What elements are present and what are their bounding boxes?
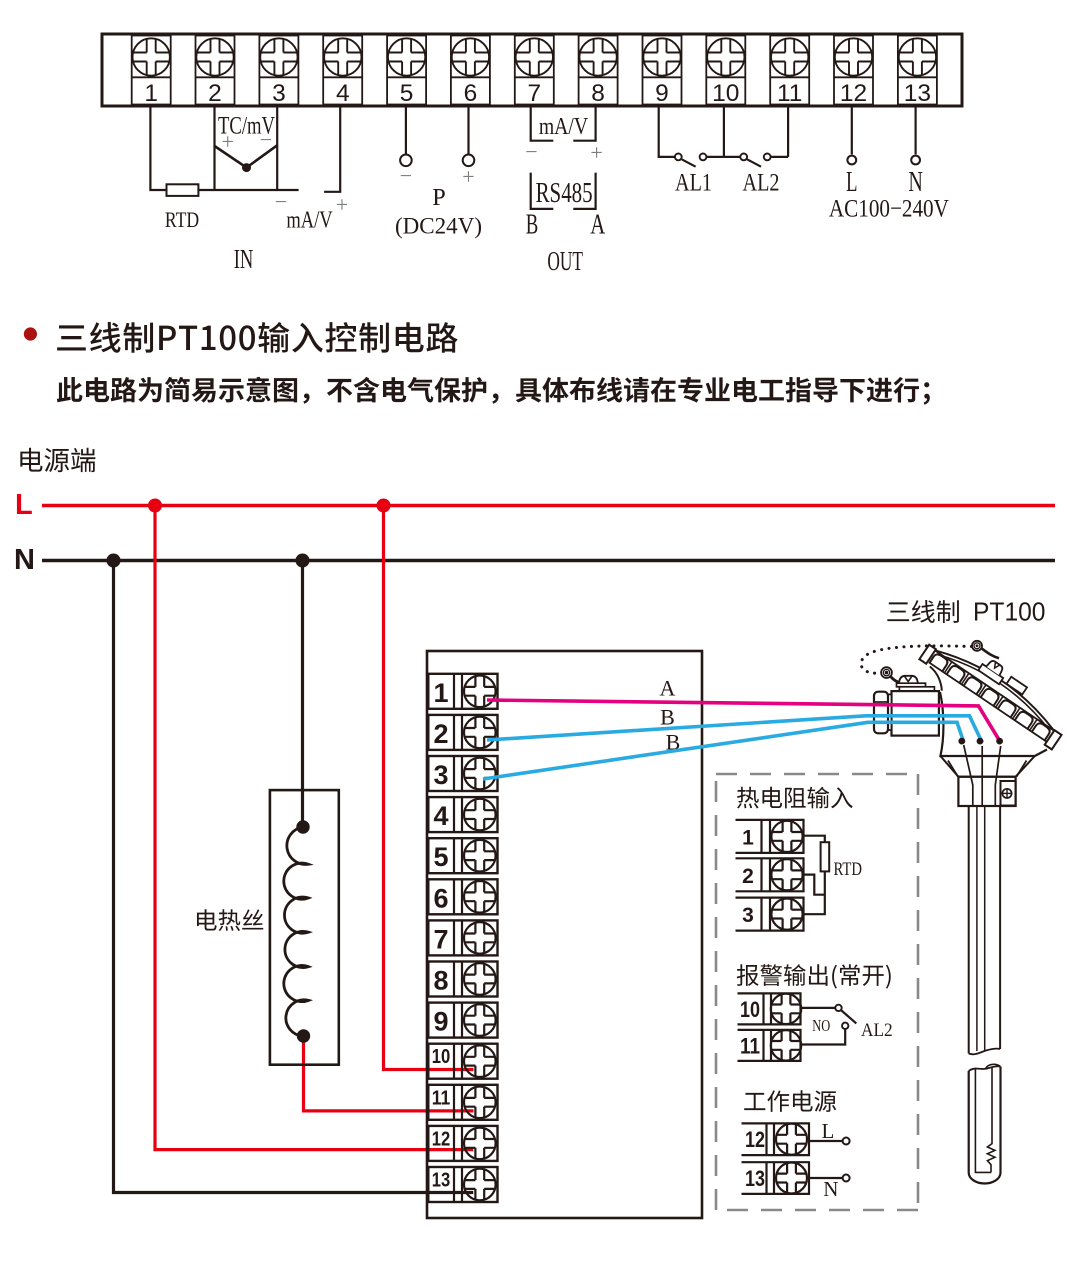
svg-text:1: 1: [742, 826, 754, 849]
svg-text:5: 5: [433, 842, 448, 872]
svg-text:L: L: [822, 1119, 835, 1143]
svg-text:5: 5: [400, 80, 414, 107]
svg-text:9: 9: [433, 1007, 448, 1037]
svg-text:1: 1: [144, 80, 158, 107]
svg-text:4: 4: [433, 801, 448, 831]
svg-text:13: 13: [432, 1169, 451, 1192]
svg-text:11: 11: [777, 80, 802, 107]
svg-text:N: N: [14, 544, 35, 576]
svg-text:10: 10: [432, 1045, 451, 1068]
svg-text:9: 9: [655, 80, 669, 107]
svg-text:8: 8: [433, 966, 448, 996]
svg-text:A: A: [590, 209, 606, 240]
svg-text:P: P: [432, 185, 446, 211]
svg-text:+: +: [336, 192, 348, 217]
svg-text:−: −: [525, 139, 537, 164]
svg-text:AL1: AL1: [675, 170, 712, 197]
svg-text:B: B: [660, 705, 675, 730]
svg-text:L: L: [846, 167, 858, 198]
svg-text:6: 6: [464, 80, 478, 107]
svg-text:N: N: [823, 1177, 838, 1201]
svg-text:3: 3: [433, 760, 448, 790]
svg-text:2: 2: [742, 865, 754, 888]
svg-text:RTD: RTD: [834, 859, 863, 880]
svg-text:13: 13: [904, 80, 931, 107]
svg-text:13: 13: [745, 1166, 765, 1191]
svg-text:AC100−240V: AC100−240V: [829, 196, 949, 223]
svg-text:RTD: RTD: [165, 207, 199, 232]
svg-text:RS485: RS485: [536, 178, 593, 209]
svg-text:7: 7: [527, 80, 541, 107]
svg-text:10: 10: [712, 80, 739, 107]
svg-text:−: −: [260, 127, 272, 152]
svg-text:B: B: [526, 209, 539, 240]
svg-text:+: +: [590, 140, 602, 165]
svg-text:12: 12: [745, 1127, 765, 1152]
svg-text:+: +: [462, 164, 474, 189]
svg-text:3: 3: [742, 904, 754, 927]
svg-text:−: −: [400, 163, 412, 188]
svg-text:mA/V: mA/V: [286, 207, 333, 233]
svg-text:8: 8: [591, 80, 605, 107]
svg-text:11: 11: [432, 1086, 451, 1109]
svg-text:+: +: [221, 129, 233, 154]
svg-text:OUT: OUT: [547, 246, 583, 276]
svg-text:PT100: PT100: [973, 597, 1046, 627]
svg-text:2: 2: [208, 80, 222, 107]
svg-text:4: 4: [336, 80, 350, 107]
svg-text:mA/V: mA/V: [539, 114, 589, 140]
svg-text:AL2: AL2: [743, 170, 780, 197]
svg-text:6: 6: [433, 883, 448, 913]
svg-text:7: 7: [433, 924, 448, 954]
svg-text:N: N: [908, 167, 923, 198]
svg-text:(DC24V): (DC24V): [395, 214, 482, 239]
svg-text:12: 12: [432, 1127, 451, 1150]
svg-text:L: L: [15, 489, 33, 521]
svg-text:3: 3: [272, 80, 286, 107]
svg-text:11: 11: [740, 1033, 760, 1058]
svg-text:A: A: [660, 676, 676, 701]
svg-text:2: 2: [433, 719, 448, 749]
svg-text:NO: NO: [812, 1016, 830, 1035]
svg-text:12: 12: [840, 80, 867, 107]
svg-text:AL2: AL2: [861, 1021, 893, 1041]
svg-text:IN: IN: [234, 244, 254, 274]
svg-text:10: 10: [740, 997, 760, 1022]
svg-text:−: −: [275, 189, 287, 214]
svg-text:1: 1: [433, 678, 448, 708]
